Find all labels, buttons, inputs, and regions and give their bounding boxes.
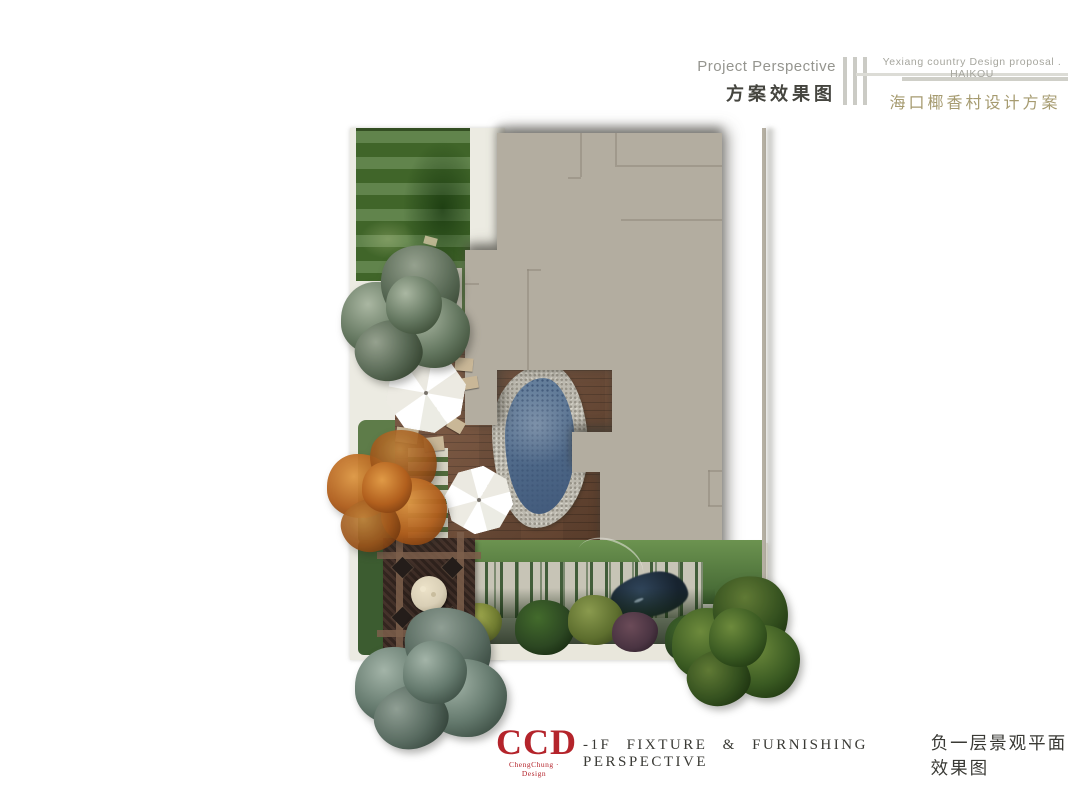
pool-water — [505, 378, 575, 514]
boundary-wall — [762, 128, 766, 580]
canopy-tree-blue-gray — [352, 602, 512, 752]
caption-chinese: 负一层景观平面效果图 — [931, 730, 1080, 780]
header-section-title: Project Perspective 方案效果图 — [640, 58, 836, 106]
ccd-logo: CCD ChengChung · Design — [496, 725, 572, 778]
ccd-logo-subtext: ChengChung · Design — [496, 760, 572, 778]
slide-caption: -1F FIXTURE & FURNISHING PERSPECTIVE 负一层… — [583, 730, 1080, 780]
proposal-title-english: Yexiang country Design proposal . HAIKOU — [872, 56, 1072, 80]
presentation-slide: Project Perspective 方案效果图 Yexiang countr… — [0, 0, 1080, 810]
bush-purple — [612, 612, 658, 652]
caption-english: -1F FIXTURE & FURNISHING PERSPECTIVE — [583, 737, 909, 771]
ccd-logo-text: CCD — [496, 725, 572, 759]
section-title-english: Project Perspective — [640, 58, 836, 75]
boundary-wall-shadow — [767, 128, 777, 586]
proposal-title-chinese: 海口椰香村设计方案 — [880, 89, 1070, 113]
landscape-plan-rendering — [340, 120, 810, 760]
bush-dark-green — [515, 600, 575, 655]
canopy-tree-autumn-orange — [322, 425, 455, 558]
canopy-tree-dark-green — [668, 572, 806, 712]
section-title-chinese: 方案效果图 — [640, 80, 836, 106]
canopy-tree-gray-green — [338, 242, 478, 385]
header-divider-bars — [843, 57, 867, 105]
